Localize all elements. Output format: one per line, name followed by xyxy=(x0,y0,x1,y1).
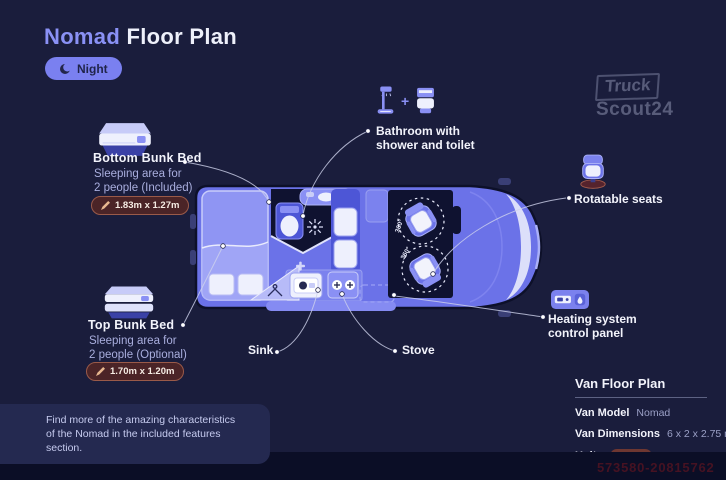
entry-step xyxy=(266,301,396,311)
logo-scout24: Scout24 xyxy=(596,99,673,121)
plus-sign: + xyxy=(401,93,409,109)
bathroom-icons: + xyxy=(375,84,437,117)
floorplan-infographic: 360° 360° xyxy=(0,0,726,480)
shower-column-icon xyxy=(375,84,396,117)
night-mode-label: Night xyxy=(77,62,108,76)
sink-label: Sink xyxy=(248,343,273,357)
top-bunk-desc: Sleeping area for 2 people (Optional) xyxy=(89,335,187,362)
note-box: Find more of the amazing characteristics… xyxy=(0,404,270,464)
bathroom-label: Bathroom with shower and toilet xyxy=(376,124,475,152)
van-cabinet xyxy=(366,190,388,222)
heating-panel-icon xyxy=(551,290,589,314)
rotatable-seats-label: Rotatable seats xyxy=(574,192,663,206)
page-title-rest: Floor Plan xyxy=(126,24,237,49)
bottom-bunk-dimensions-badge: 1.83m x 1.27m xyxy=(91,196,189,215)
heating-label: Heating system control panel xyxy=(548,312,637,340)
moon-icon xyxy=(59,63,71,75)
pencil-icon xyxy=(96,367,105,376)
van-dinette xyxy=(331,189,360,273)
wing-mirror xyxy=(498,178,511,185)
info-panel-heading: Van Floor Plan xyxy=(575,376,707,398)
night-mode-toggle[interactable]: Night xyxy=(45,57,122,80)
info-row-model: Van Model Nomad xyxy=(575,407,707,419)
watermark-number: 573580-20815762 xyxy=(597,460,715,475)
toilet-feature-icon xyxy=(414,86,437,116)
van-info-panel: Van Floor Plan Van Model Nomad Van Dimen… xyxy=(575,376,707,463)
rotatable-seat-icon xyxy=(578,152,608,195)
top-bunk-dimensions-badge: 1.70m x 1.20m xyxy=(86,362,184,381)
toilet-icon xyxy=(276,203,303,239)
van-seating-area: 360° 360° xyxy=(388,190,453,298)
logo-truck: Truck xyxy=(595,73,660,101)
van-floorplan: 360° 360° xyxy=(190,178,541,317)
stove-label: Stove xyxy=(402,343,435,357)
rear-door-handle xyxy=(190,214,196,229)
page-title: Nomad Floor Plan xyxy=(44,24,237,50)
bottom-bunk-desc: Sleeping area for 2 people (Included) xyxy=(94,168,192,195)
page-title-brand: Nomad xyxy=(44,24,120,49)
bottom-bunk-title: Bottom Bunk Bed xyxy=(93,151,202,165)
top-bunk-title: Top Bunk Bed xyxy=(88,318,174,332)
shower-icon xyxy=(307,219,323,235)
van-bed xyxy=(202,191,268,300)
info-row-dimensions: Van Dimensions 6 x 2 x 2.75 m xyxy=(575,428,707,440)
truckscout24-logo: Truck Scout24 xyxy=(596,74,673,121)
rear-door-handle xyxy=(190,250,196,265)
pencil-icon xyxy=(101,201,110,210)
